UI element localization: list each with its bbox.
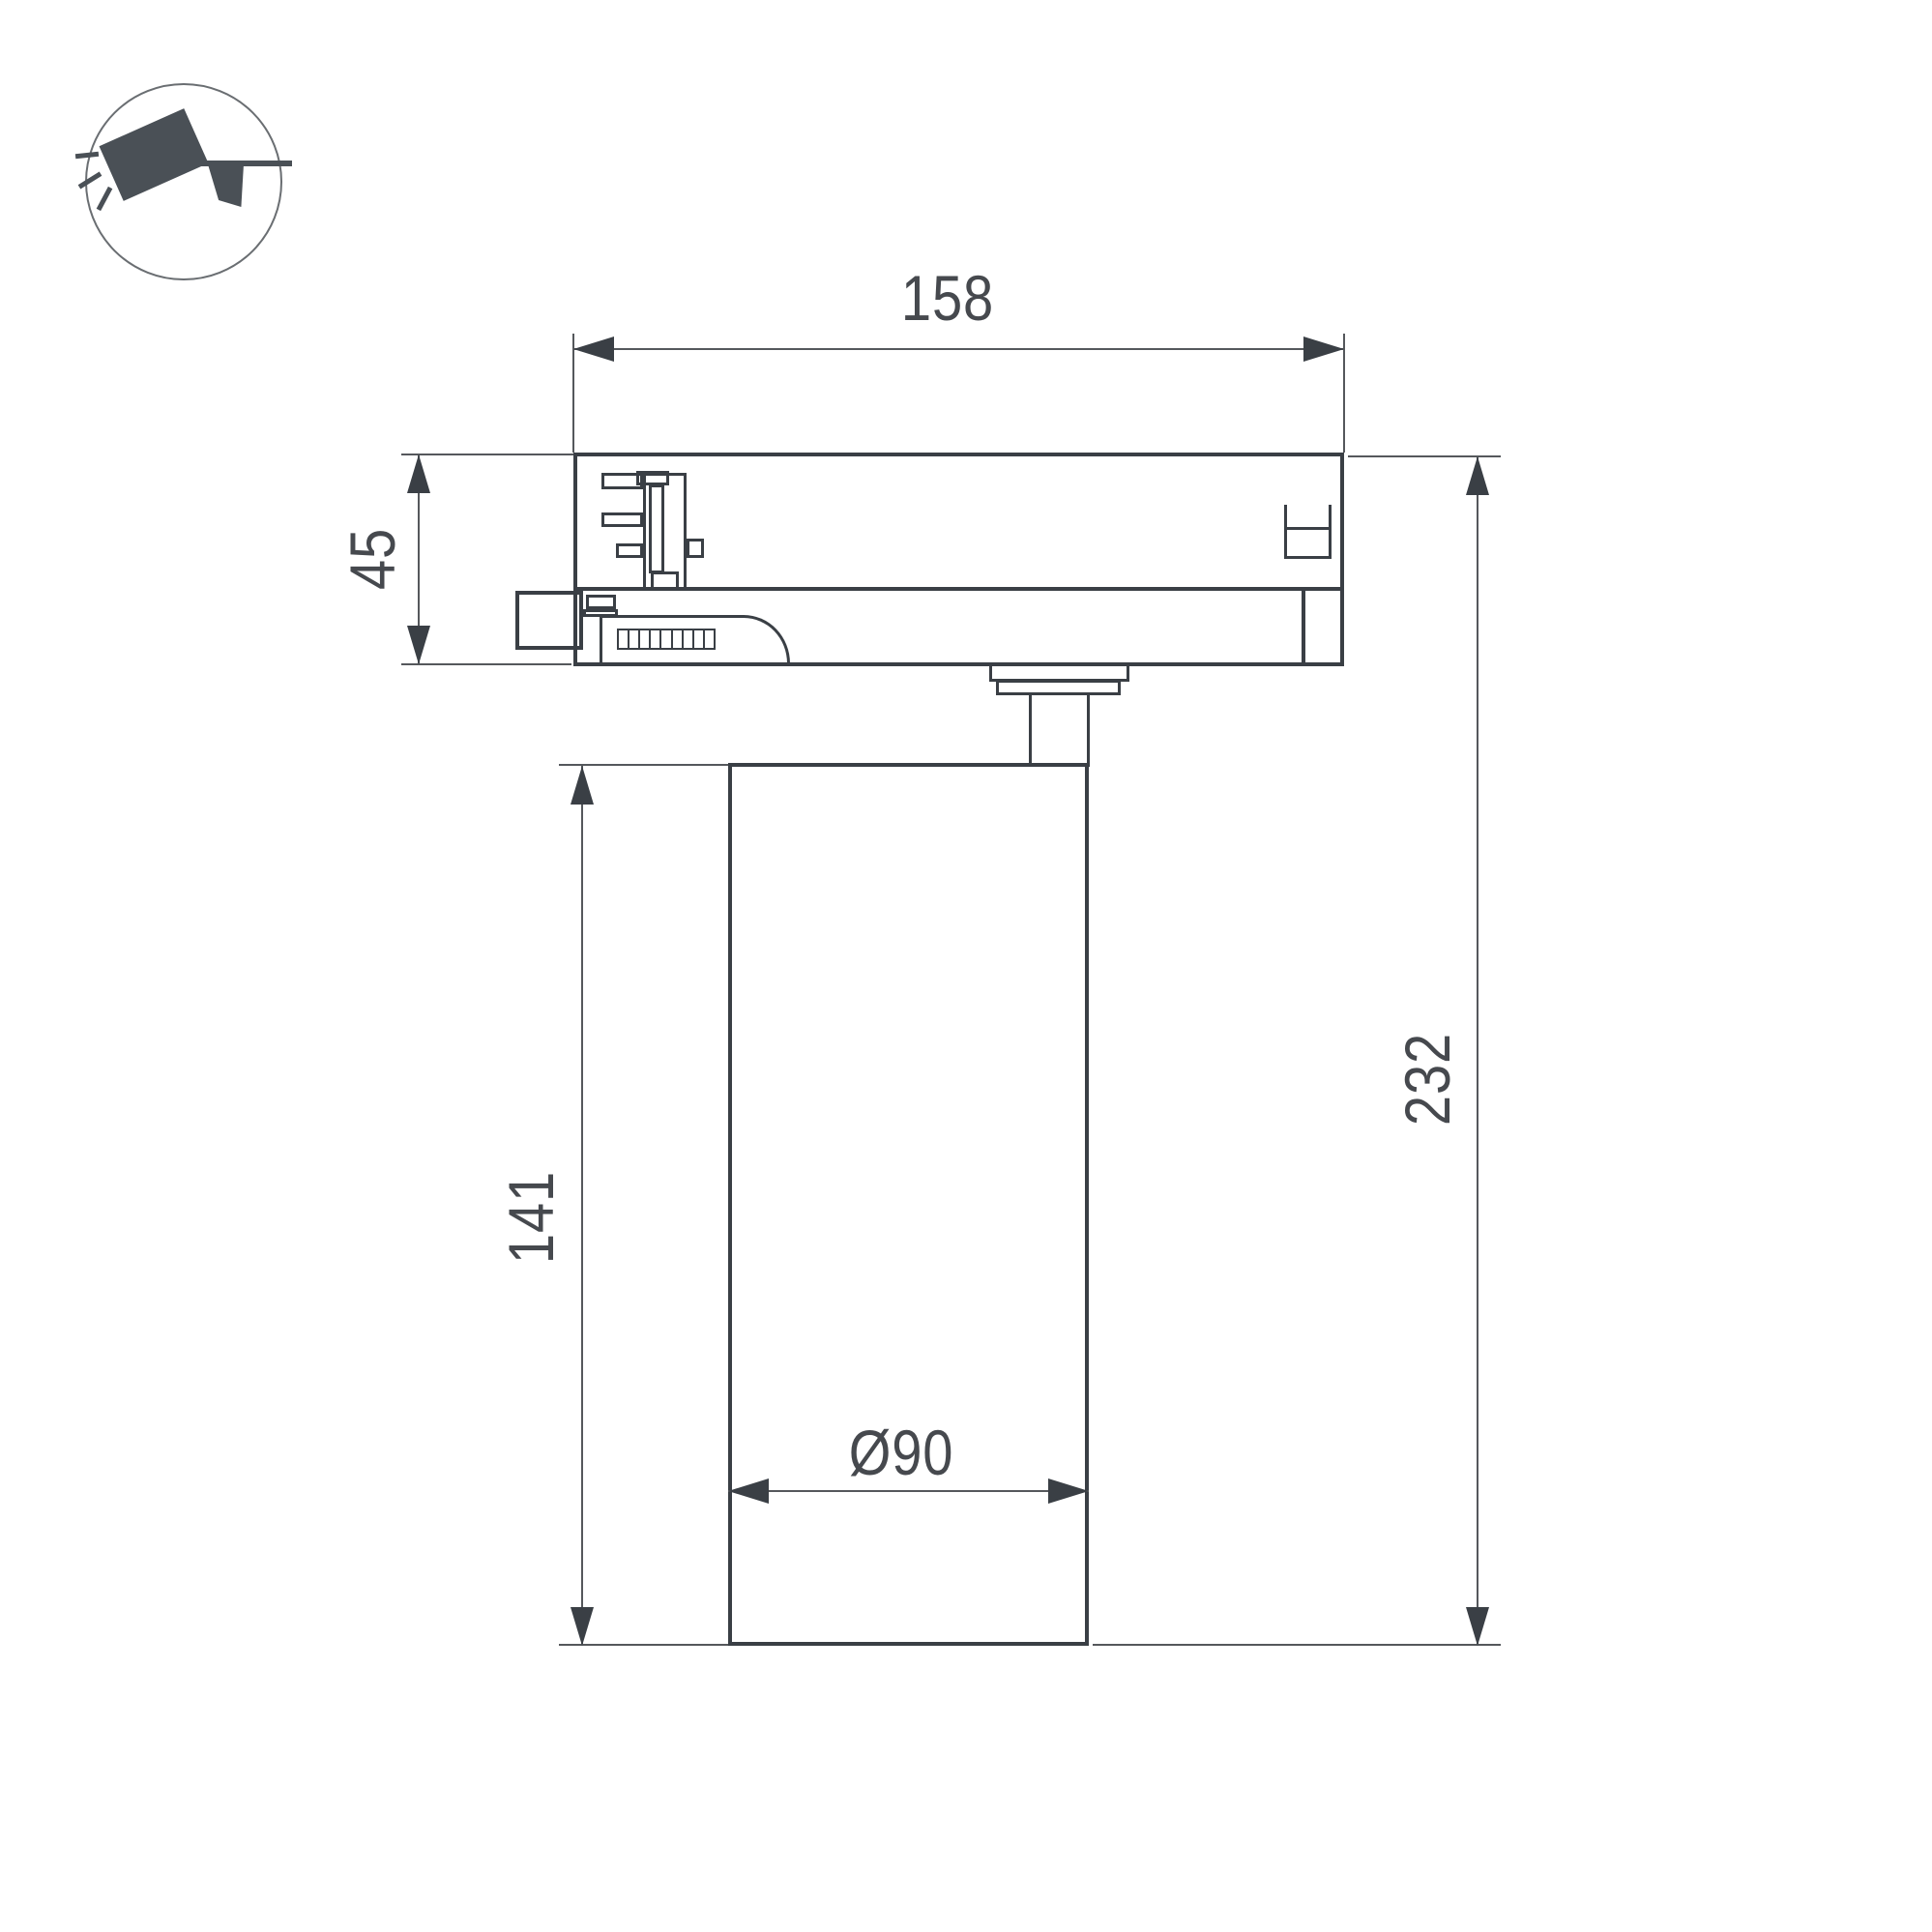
grill-cell [651, 630, 661, 648]
arrowhead [571, 766, 594, 805]
latch-clip [1284, 505, 1332, 559]
contact-pin-foot [651, 571, 679, 590]
swivel-stem [1029, 693, 1090, 767]
contact-tab [601, 512, 643, 527]
clamp-tab [586, 595, 616, 609]
dimension-line [1477, 456, 1478, 1646]
dim-body-diameter-label: Ø90 [811, 1420, 992, 1485]
latch-clip-bar [1287, 527, 1329, 530]
grill-cell [640, 630, 651, 648]
grill-cell [684, 630, 694, 648]
adjustment-grill [617, 629, 716, 650]
arrowhead [1466, 456, 1489, 495]
grill-cell [629, 630, 640, 648]
arrowhead [573, 337, 614, 362]
dim-total-height-label: 232 [1394, 1006, 1460, 1154]
dimension-line [728, 1490, 1089, 1492]
lamp-cylinder-body [728, 763, 1089, 1646]
grill-cell [705, 630, 714, 648]
housing-divider-line [1302, 587, 1305, 666]
contact-block-tab [687, 539, 704, 558]
grill-cell [694, 630, 705, 648]
contact-pin-shaft [649, 484, 664, 573]
drawing-canvas: 158 45 141 232 Ø90 [0, 0, 1932, 1932]
arrowhead [407, 626, 430, 664]
grill-cell [673, 630, 684, 648]
grill-cell [619, 630, 629, 648]
grill-cell [661, 630, 672, 648]
mount-clamp-lever [515, 591, 583, 650]
dim-track-adapter-width-label: 158 [865, 265, 1030, 331]
arrowhead [1048, 1478, 1089, 1504]
arrowhead [407, 454, 430, 493]
arrowhead [1303, 337, 1344, 362]
contact-tab [616, 543, 643, 558]
arrowhead [728, 1478, 769, 1504]
track-adapter-body [573, 453, 1344, 591]
dim-body-height-label: 141 [498, 1144, 564, 1292]
swivel-step-upper [989, 662, 1129, 682]
extension-line [1093, 1644, 1501, 1646]
dimension-line [573, 348, 1344, 350]
contact-pin-cap [636, 471, 669, 485]
arrowhead [1466, 1607, 1489, 1646]
dim-track-adapter-height-label: 45 [339, 510, 405, 608]
dimension-line [581, 766, 583, 1646]
arrowhead [571, 1607, 594, 1646]
